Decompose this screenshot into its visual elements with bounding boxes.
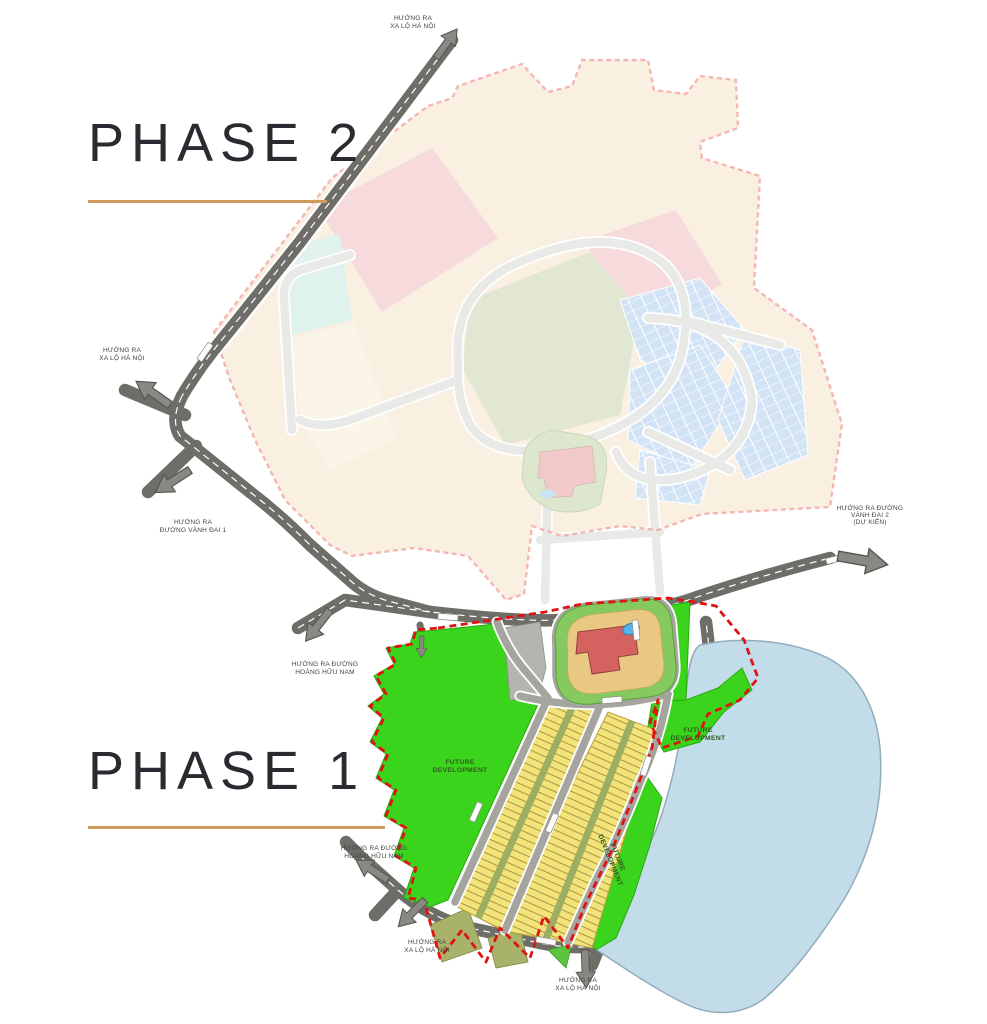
direction-label-north: HƯỚNG RA [394,13,432,22]
future-development-label-left: FUTURE [445,759,475,766]
direction-label-west-lower: HƯỚNG RA [174,517,212,526]
svg-text:XA LỘ HÀ NỘI: XA LỘ HÀ NỘI [390,21,435,30]
road-label-box [438,613,458,620]
future-development-label-right: FUTURE [683,727,713,734]
phase1-title: PHASE 1 [88,744,365,798]
phase2-clubhouse [522,430,607,512]
svg-text:DEVELOPMENT: DEVELOPMENT [670,735,726,742]
svg-text:ĐƯỜNG VÀNH ĐAI 1: ĐƯỜNG VÀNH ĐAI 1 [160,525,227,534]
direction-label-west-upper: HƯỚNG RA [103,345,141,354]
svg-text:DEVELOPMENT: DEVELOPMENT [432,767,488,774]
svg-text:HOÀNG HỮU NAM: HOÀNG HỮU NAM [295,667,354,676]
svg-text:XA LỘ HÀ NỘI: XA LỘ HÀ NỘI [404,945,449,954]
direction-label-east: HƯỚNG RA ĐƯỜNG [837,503,903,512]
svg-text:XA LỘ HÀ NỘI: XA LỘ HÀ NỘI [555,983,600,992]
exit-arrow-east [836,544,890,578]
direction-label-mid-west: HƯỚNG RA ĐƯỜNG [292,659,358,668]
svg-text:VÀNH ĐAI 2: VÀNH ĐAI 2 [851,510,889,519]
direction-label-southwest-upper: HƯỚNG RA ĐƯỜNG [341,843,407,852]
svg-text:HOÀNG HỮU NAM: HOÀNG HỮU NAM [344,851,403,860]
phase2-underline [88,200,327,203]
phase2-title: PHASE 2 [88,116,365,170]
phase1-underline [88,826,385,829]
road-label-box [602,696,622,704]
direction-label-south: HƯỚNG RA [559,975,597,984]
clubhouse [555,599,676,704]
svg-text:XA LỘ HÀ NỘI: XA LỘ HÀ NỘI [99,353,144,362]
master-plan-page: HƯỚNG RA XA LỘ HÀ NỘI HƯỚNG RA XA LỘ HÀ … [0,0,987,1024]
direction-label-southwest-lower: HƯỚNG RA [408,937,446,946]
